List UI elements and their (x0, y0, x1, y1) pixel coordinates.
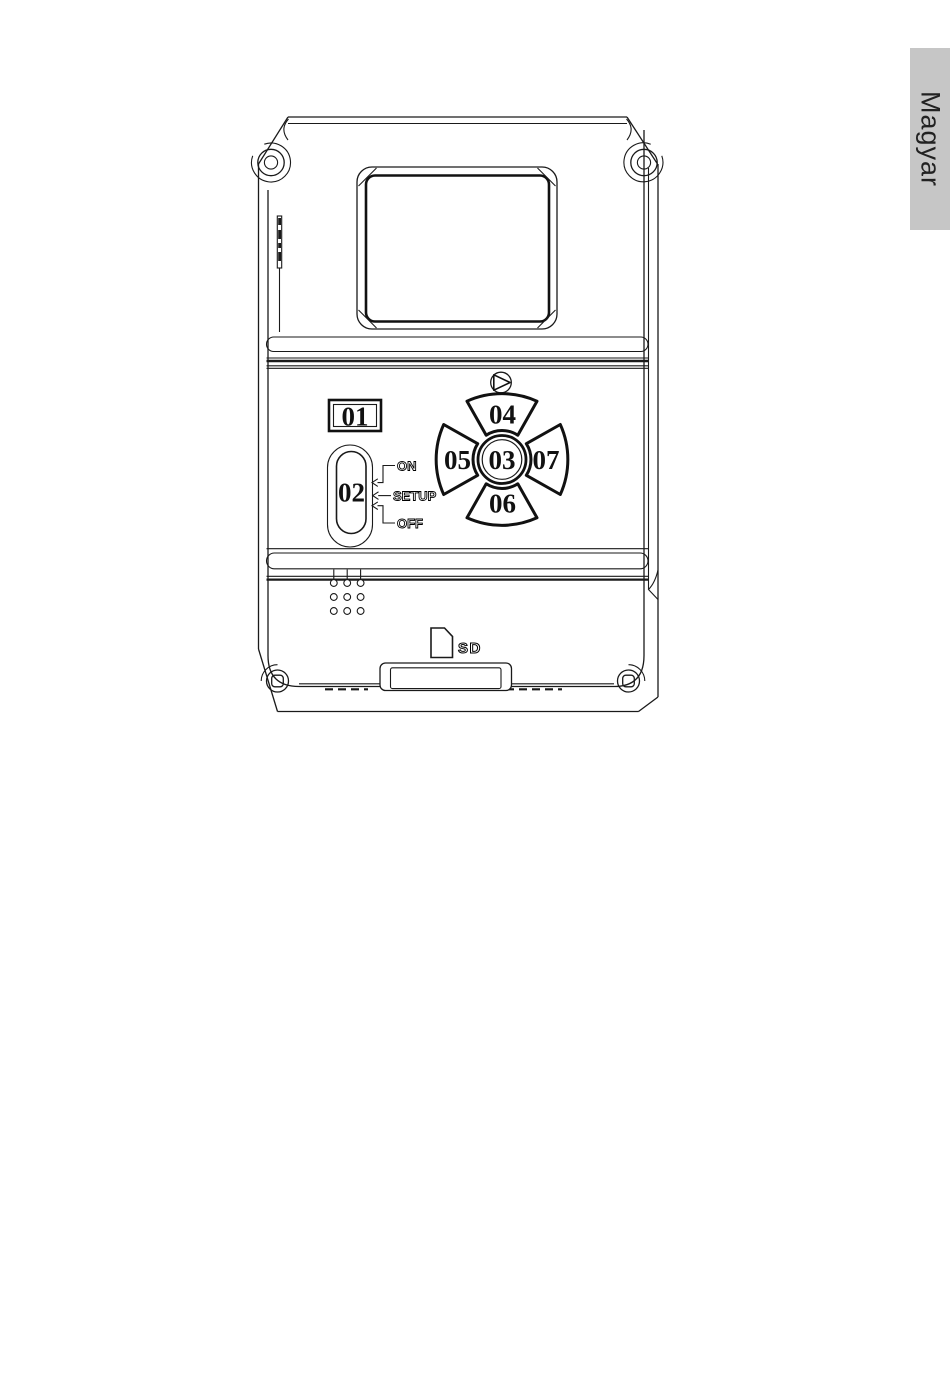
device-outline (259, 117, 659, 712)
screen-corner-chamfers (359, 168, 556, 328)
callout-02-label: 02 (338, 478, 365, 508)
callout-05-label: 05 (444, 445, 471, 475)
groove-band-lower (267, 553, 649, 569)
bracket-on (378, 466, 396, 483)
bottom-right-chamfer (639, 697, 659, 712)
sd-card-slot: SD (431, 628, 482, 658)
screw-top-left-icon (252, 143, 291, 182)
switch-label-on: ON (397, 459, 417, 474)
callout-04-label: 04 (489, 400, 516, 430)
display-screen (357, 167, 557, 329)
sd-card-icon (431, 628, 453, 658)
groove-lines-upper (267, 358, 649, 368)
switch-label-off: OFF (397, 516, 423, 531)
manual-page: Magyar (0, 0, 950, 1374)
screw-bottom-right-icon (618, 665, 645, 692)
sd-label: SD (458, 640, 482, 657)
hinge-ticks (277, 216, 281, 332)
power-switch: 02 (328, 445, 373, 547)
switch-label-setup: SETUP (393, 488, 437, 503)
right-edge-notch (649, 570, 659, 600)
callout-01-label: 01 (342, 402, 369, 432)
callout-07-label: 07 (533, 445, 560, 475)
switch-position-labels: ON SETUP OFF (372, 459, 437, 531)
screen-panel (366, 176, 549, 322)
groove-band-upper (267, 337, 649, 352)
bracket-off (378, 506, 396, 523)
screen-frame (357, 167, 557, 329)
switch-arrow-setup-icon (373, 492, 379, 500)
dpad: 03 04 05 06 07 (436, 394, 568, 526)
callout-01-box: 01 (329, 400, 381, 432)
callout-03-label: 03 (489, 445, 516, 475)
bottom-latch (380, 663, 512, 691)
corner-screws (252, 143, 663, 692)
play-icon (491, 372, 512, 393)
callout-06-label: 06 (489, 489, 516, 519)
device-diagram: 01 02 ON SETUP OFF (0, 0, 950, 1374)
